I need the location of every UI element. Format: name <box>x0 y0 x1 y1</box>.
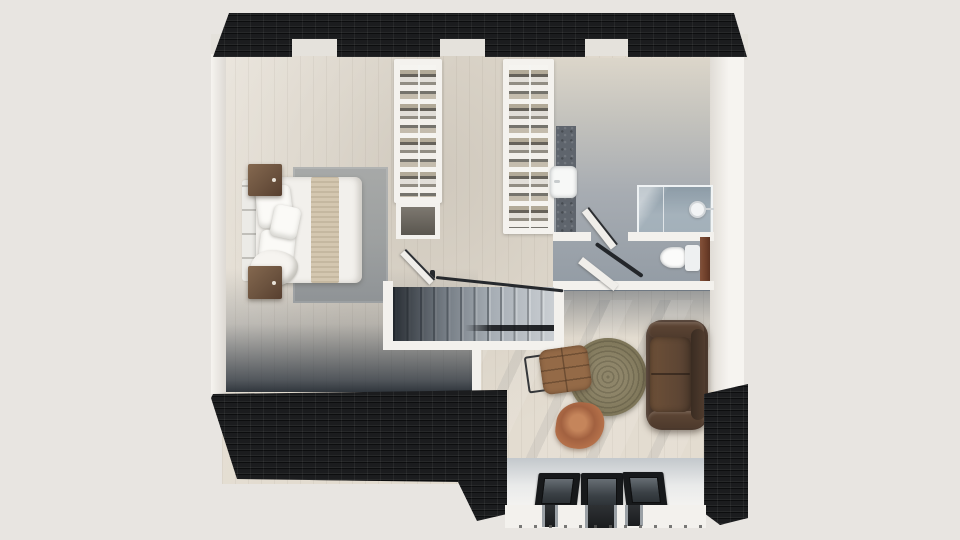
nightstand-bottom <box>248 266 282 299</box>
nightstand-top <box>248 164 282 196</box>
closet-alcove <box>401 207 435 235</box>
bottom-right-roof <box>704 384 748 525</box>
stairwell-right-wall <box>554 287 564 350</box>
toilet <box>660 245 702 271</box>
shower-glass-seam <box>663 187 664 233</box>
roof-window-glass <box>587 478 617 508</box>
leather-sofa <box>646 320 708 430</box>
sofa-cushion-divider <box>651 373 690 375</box>
leather-armchair <box>523 342 597 401</box>
staircase-shading <box>393 287 554 342</box>
bottom-left-roof <box>211 388 507 523</box>
toilet-tank <box>685 245 700 271</box>
washbasin <box>550 166 577 198</box>
walk-in-closet-1 <box>394 59 442 203</box>
partition-wall-stub <box>472 350 481 394</box>
bed-throw-runner <box>311 177 339 283</box>
nightstand-knob <box>272 281 276 285</box>
faucet <box>554 180 560 183</box>
closet-2-clothes <box>509 65 548 228</box>
bathroom-bottom-wall <box>553 281 714 290</box>
roof-window-glass <box>629 477 661 503</box>
nightstand-knob <box>272 178 276 182</box>
right-wall <box>710 54 744 390</box>
walk-in-closet-2 <box>503 59 554 234</box>
dormer-wall-ticks <box>507 525 706 528</box>
armchair-seat <box>538 344 593 395</box>
closet-1-clothes <box>400 65 436 197</box>
dormer-window-slot <box>625 505 643 526</box>
sofa-backrest <box>691 329 705 420</box>
closet-rail <box>418 65 420 197</box>
mirror-arm <box>705 208 714 210</box>
round-mirror <box>689 201 706 218</box>
toilet-bowl <box>660 247 687 268</box>
staircase-bottom-edge <box>465 325 554 331</box>
staircase <box>393 287 554 342</box>
stairwell-left-wall <box>383 281 393 350</box>
bathroom-mid-wall-left <box>553 232 591 241</box>
closet-alcove-frame <box>396 203 440 239</box>
roof-window-glass <box>541 478 574 504</box>
closet-rail <box>529 65 531 228</box>
dormer-window-slot <box>542 505 558 527</box>
floor-plan-render <box>0 0 960 540</box>
left-wall <box>211 54 226 394</box>
